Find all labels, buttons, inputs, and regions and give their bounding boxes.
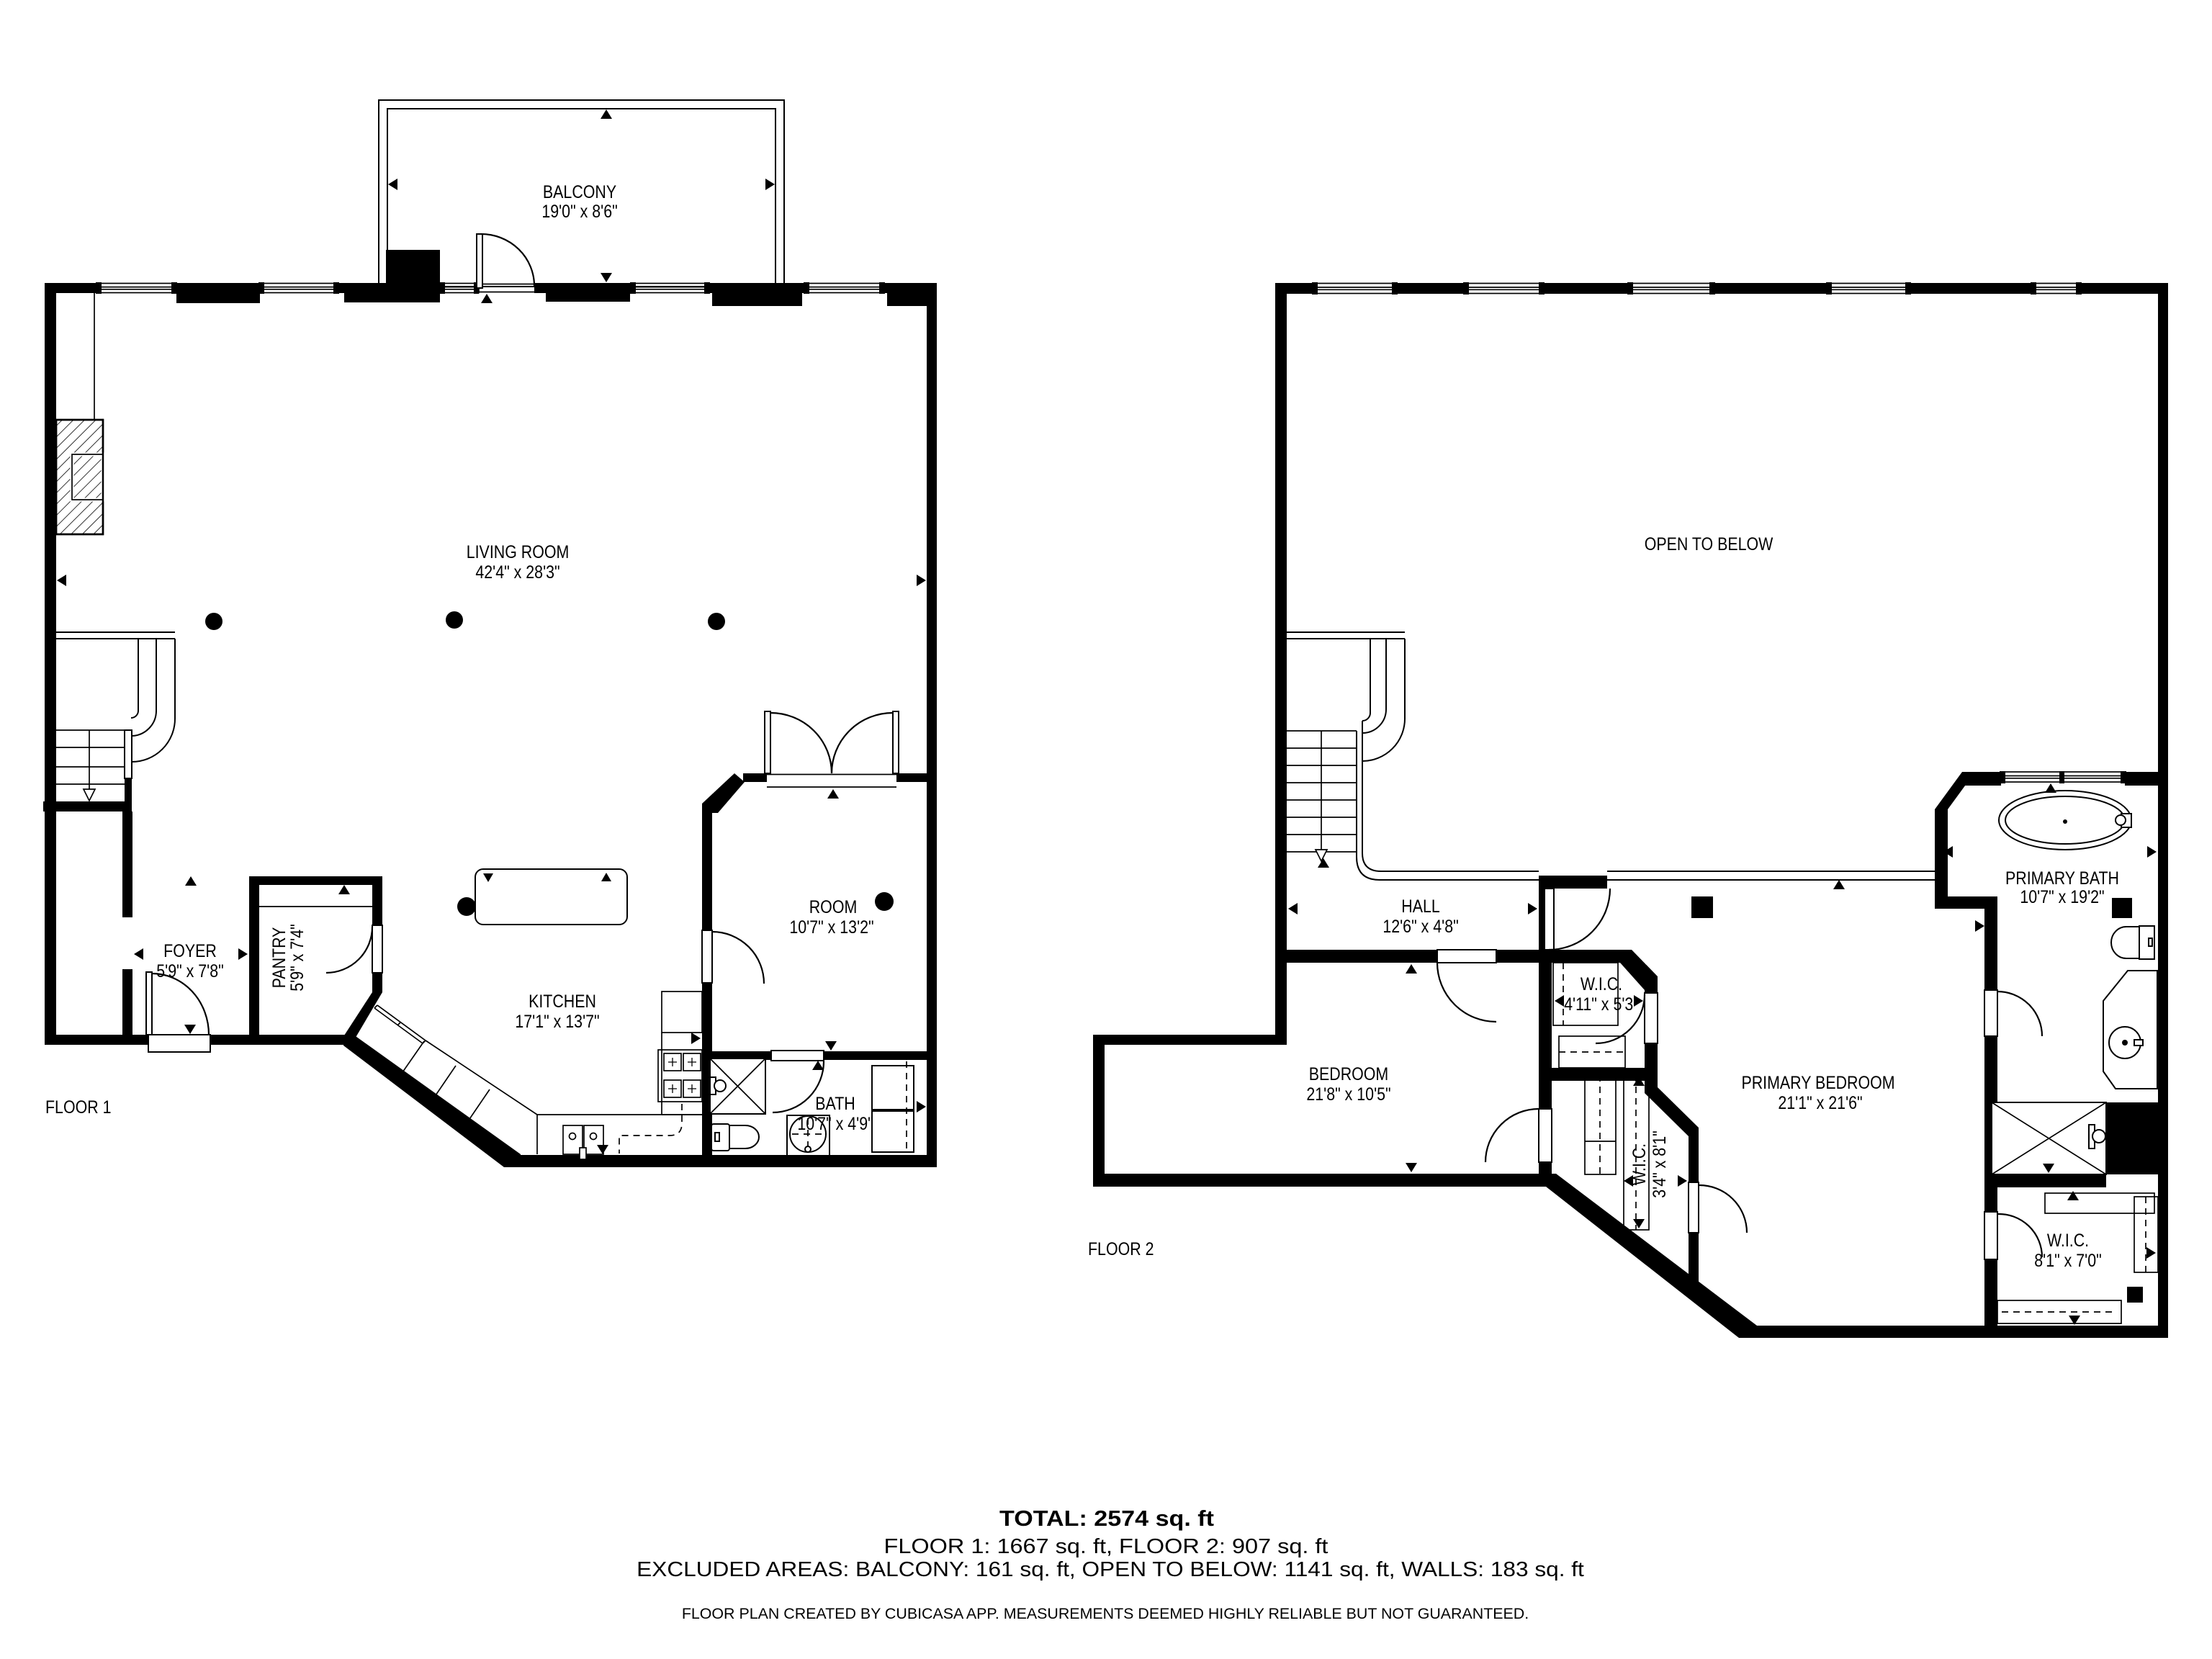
svg-text:21'8" x 10'5": 21'8" x 10'5"	[1306, 1084, 1390, 1105]
svg-text:10'7" x 19'2": 10'7" x 19'2"	[2020, 887, 2104, 907]
svg-text:12'6" x 4'8": 12'6" x 4'8"	[1382, 917, 1458, 937]
svg-text:21'1" x 21'6": 21'1" x 21'6"	[1778, 1093, 1862, 1113]
svg-text:3'4" x 8'1": 3'4" x 8'1"	[1650, 1130, 1670, 1197]
svg-text:10'7" x 13'2": 10'7" x 13'2"	[789, 917, 873, 938]
svg-text:FOYER: FOYER	[163, 941, 217, 961]
svg-text:W.I.C.: W.I.C.	[2047, 1231, 2089, 1251]
svg-text:FLOOR PLAN CREATED BY CUBICASA: FLOOR PLAN CREATED BY CUBICASA APP. MEAS…	[682, 1605, 1529, 1622]
svg-text:W.I.C.: W.I.C.	[1581, 974, 1622, 994]
svg-text:10'7" x 4'9": 10'7" x 4'9"	[797, 1114, 873, 1134]
svg-text:PRIMARY BATH: PRIMARY BATH	[2005, 868, 2119, 889]
svg-text:FLOOR 1: 1667 sq. ft, FLOOR 2:: FLOOR 1: 1667 sq. ft, FLOOR 2: 907 sq. f…	[884, 1534, 1328, 1558]
svg-text:BEDROOM: BEDROOM	[1309, 1064, 1388, 1084]
svg-text:19'0" x 8'6": 19'0" x 8'6"	[541, 202, 617, 222]
svg-text:LIVING ROOM: LIVING ROOM	[467, 542, 570, 562]
svg-text:ROOM: ROOM	[809, 897, 858, 917]
svg-text:PANTRY: PANTRY	[269, 927, 289, 989]
svg-text:BATH: BATH	[815, 1094, 855, 1114]
svg-text:W.I.C.: W.I.C.	[1629, 1143, 1650, 1185]
svg-text:OPEN TO BELOW: OPEN TO BELOW	[1645, 534, 1773, 554]
svg-text:8'1" x 7'0": 8'1" x 7'0"	[2034, 1251, 2101, 1271]
svg-text:HALL: HALL	[1401, 896, 1440, 917]
svg-text:42'4" x 28'3": 42'4" x 28'3"	[475, 562, 559, 583]
svg-text:4'11" x 5'3": 4'11" x 5'3"	[1564, 994, 1639, 1015]
svg-text:FLOOR 2: FLOOR 2	[1088, 1239, 1154, 1259]
svg-text:EXCLUDED AREAS: BALCONY: 161 s: EXCLUDED AREAS: BALCONY: 161 sq. ft, OPE…	[637, 1558, 1584, 1581]
svg-text:17'1" x 13'7": 17'1" x 13'7"	[515, 1012, 599, 1032]
svg-text:BALCONY: BALCONY	[543, 182, 616, 202]
svg-text:5'9" x 7'8": 5'9" x 7'8"	[156, 961, 223, 981]
svg-text:PRIMARY BEDROOM: PRIMARY BEDROOM	[1741, 1073, 1894, 1093]
svg-text:TOTAL: 2574 sq. ft: TOTAL: 2574 sq. ft	[999, 1506, 1214, 1530]
svg-text:KITCHEN: KITCHEN	[529, 992, 596, 1012]
svg-text:5'9" x 7'4": 5'9" x 7'4"	[287, 924, 307, 991]
svg-text:FLOOR 1: FLOOR 1	[45, 1097, 111, 1118]
